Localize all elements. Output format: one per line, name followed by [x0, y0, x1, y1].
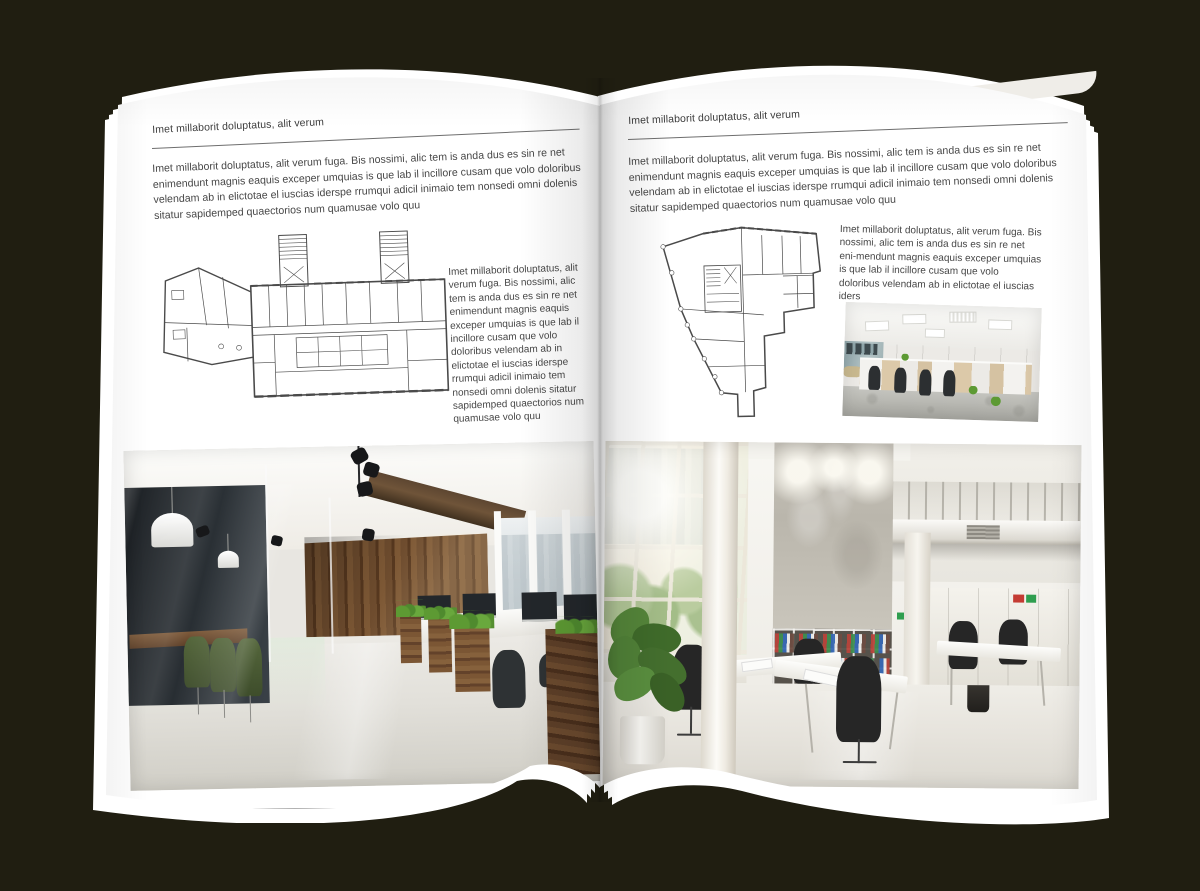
left-page-face: Imet millaborit doluptatus, alit verum I… — [98, 60, 600, 808]
round-column — [700, 442, 739, 786]
black-office-chair — [869, 365, 881, 389]
page-background: { "scene": { "type": "open-magazine-mock… — [0, 0, 1200, 891]
green-office-chair — [210, 637, 237, 692]
left-floor-plan — [153, 216, 457, 414]
right-page-photo-large — [603, 441, 1082, 789]
black-office-chair — [894, 367, 907, 392]
chair-post — [690, 707, 692, 735]
right-page-photo-small — [842, 302, 1041, 422]
black-office-chair — [836, 656, 882, 742]
book-mockup: Imet millaborit doluptatus, alit verum I… — [0, 0, 1200, 891]
black-office-chair — [492, 650, 526, 708]
wood-planter — [400, 611, 422, 662]
ceiling-light — [902, 314, 926, 324]
monitor — [521, 592, 557, 622]
right-page-intro-paragraph: Imet millaborit doluptatus, alit verum f… — [628, 140, 1064, 218]
waste-bin — [967, 685, 989, 713]
city-view — [605, 448, 711, 545]
small-plant — [966, 386, 980, 397]
pendant-lamp — [151, 512, 194, 547]
header-rule — [628, 122, 1068, 140]
binders-row — [775, 633, 889, 653]
wood-planter — [546, 628, 601, 775]
small-plant — [988, 397, 1004, 409]
plant-pot — [619, 716, 665, 765]
left-page-column-text: Imet millaborit doluptatus, alit verum f… — [448, 261, 594, 426]
right-page-column-text: Imet millaborit doluptatus, alit verum f… — [839, 223, 1042, 307]
ceiling-light — [865, 321, 889, 332]
first-aid-sign — [1013, 594, 1024, 602]
track-spotlight — [356, 480, 374, 497]
left-page-intro-paragraph: Imet millaborit doluptatus, alit verum f… — [152, 145, 584, 225]
black-office-chair — [943, 370, 956, 397]
green-office-chair — [184, 636, 211, 688]
ceiling-light — [988, 319, 1012, 330]
green-office-chair — [236, 639, 263, 697]
ceiling-light — [925, 328, 945, 337]
wall-screens — [846, 343, 878, 355]
right-page-face: Imet millaborit doluptatus, alit verum I… — [600, 55, 1100, 807]
planter-grass — [396, 599, 427, 617]
floor-plan-drawing — [644, 212, 843, 427]
planter-grass — [449, 610, 494, 630]
ceiling-light — [949, 311, 977, 322]
air-vent — [966, 525, 999, 539]
left-page: Imet millaborit doluptatus, alit verum I… — [98, 60, 600, 808]
black-office-chair — [919, 369, 932, 396]
wood-planter — [454, 624, 491, 693]
right-page-title: Imet millaborit doluptatus, alit verum — [628, 98, 1068, 127]
planter-grass — [555, 616, 598, 634]
concrete-wall — [773, 442, 894, 629]
safety-sign — [1026, 594, 1037, 602]
mezzanine-railing — [890, 481, 1081, 520]
left-page-photo — [123, 441, 600, 791]
floor-plan-drawing — [153, 216, 457, 414]
small-plant — [899, 354, 911, 362]
right-floor-plan — [644, 212, 843, 427]
pendant-lamp — [217, 551, 238, 568]
right-page: Imet millaborit doluptatus, alit verum I… — [600, 55, 1100, 807]
chair-post — [858, 739, 860, 763]
